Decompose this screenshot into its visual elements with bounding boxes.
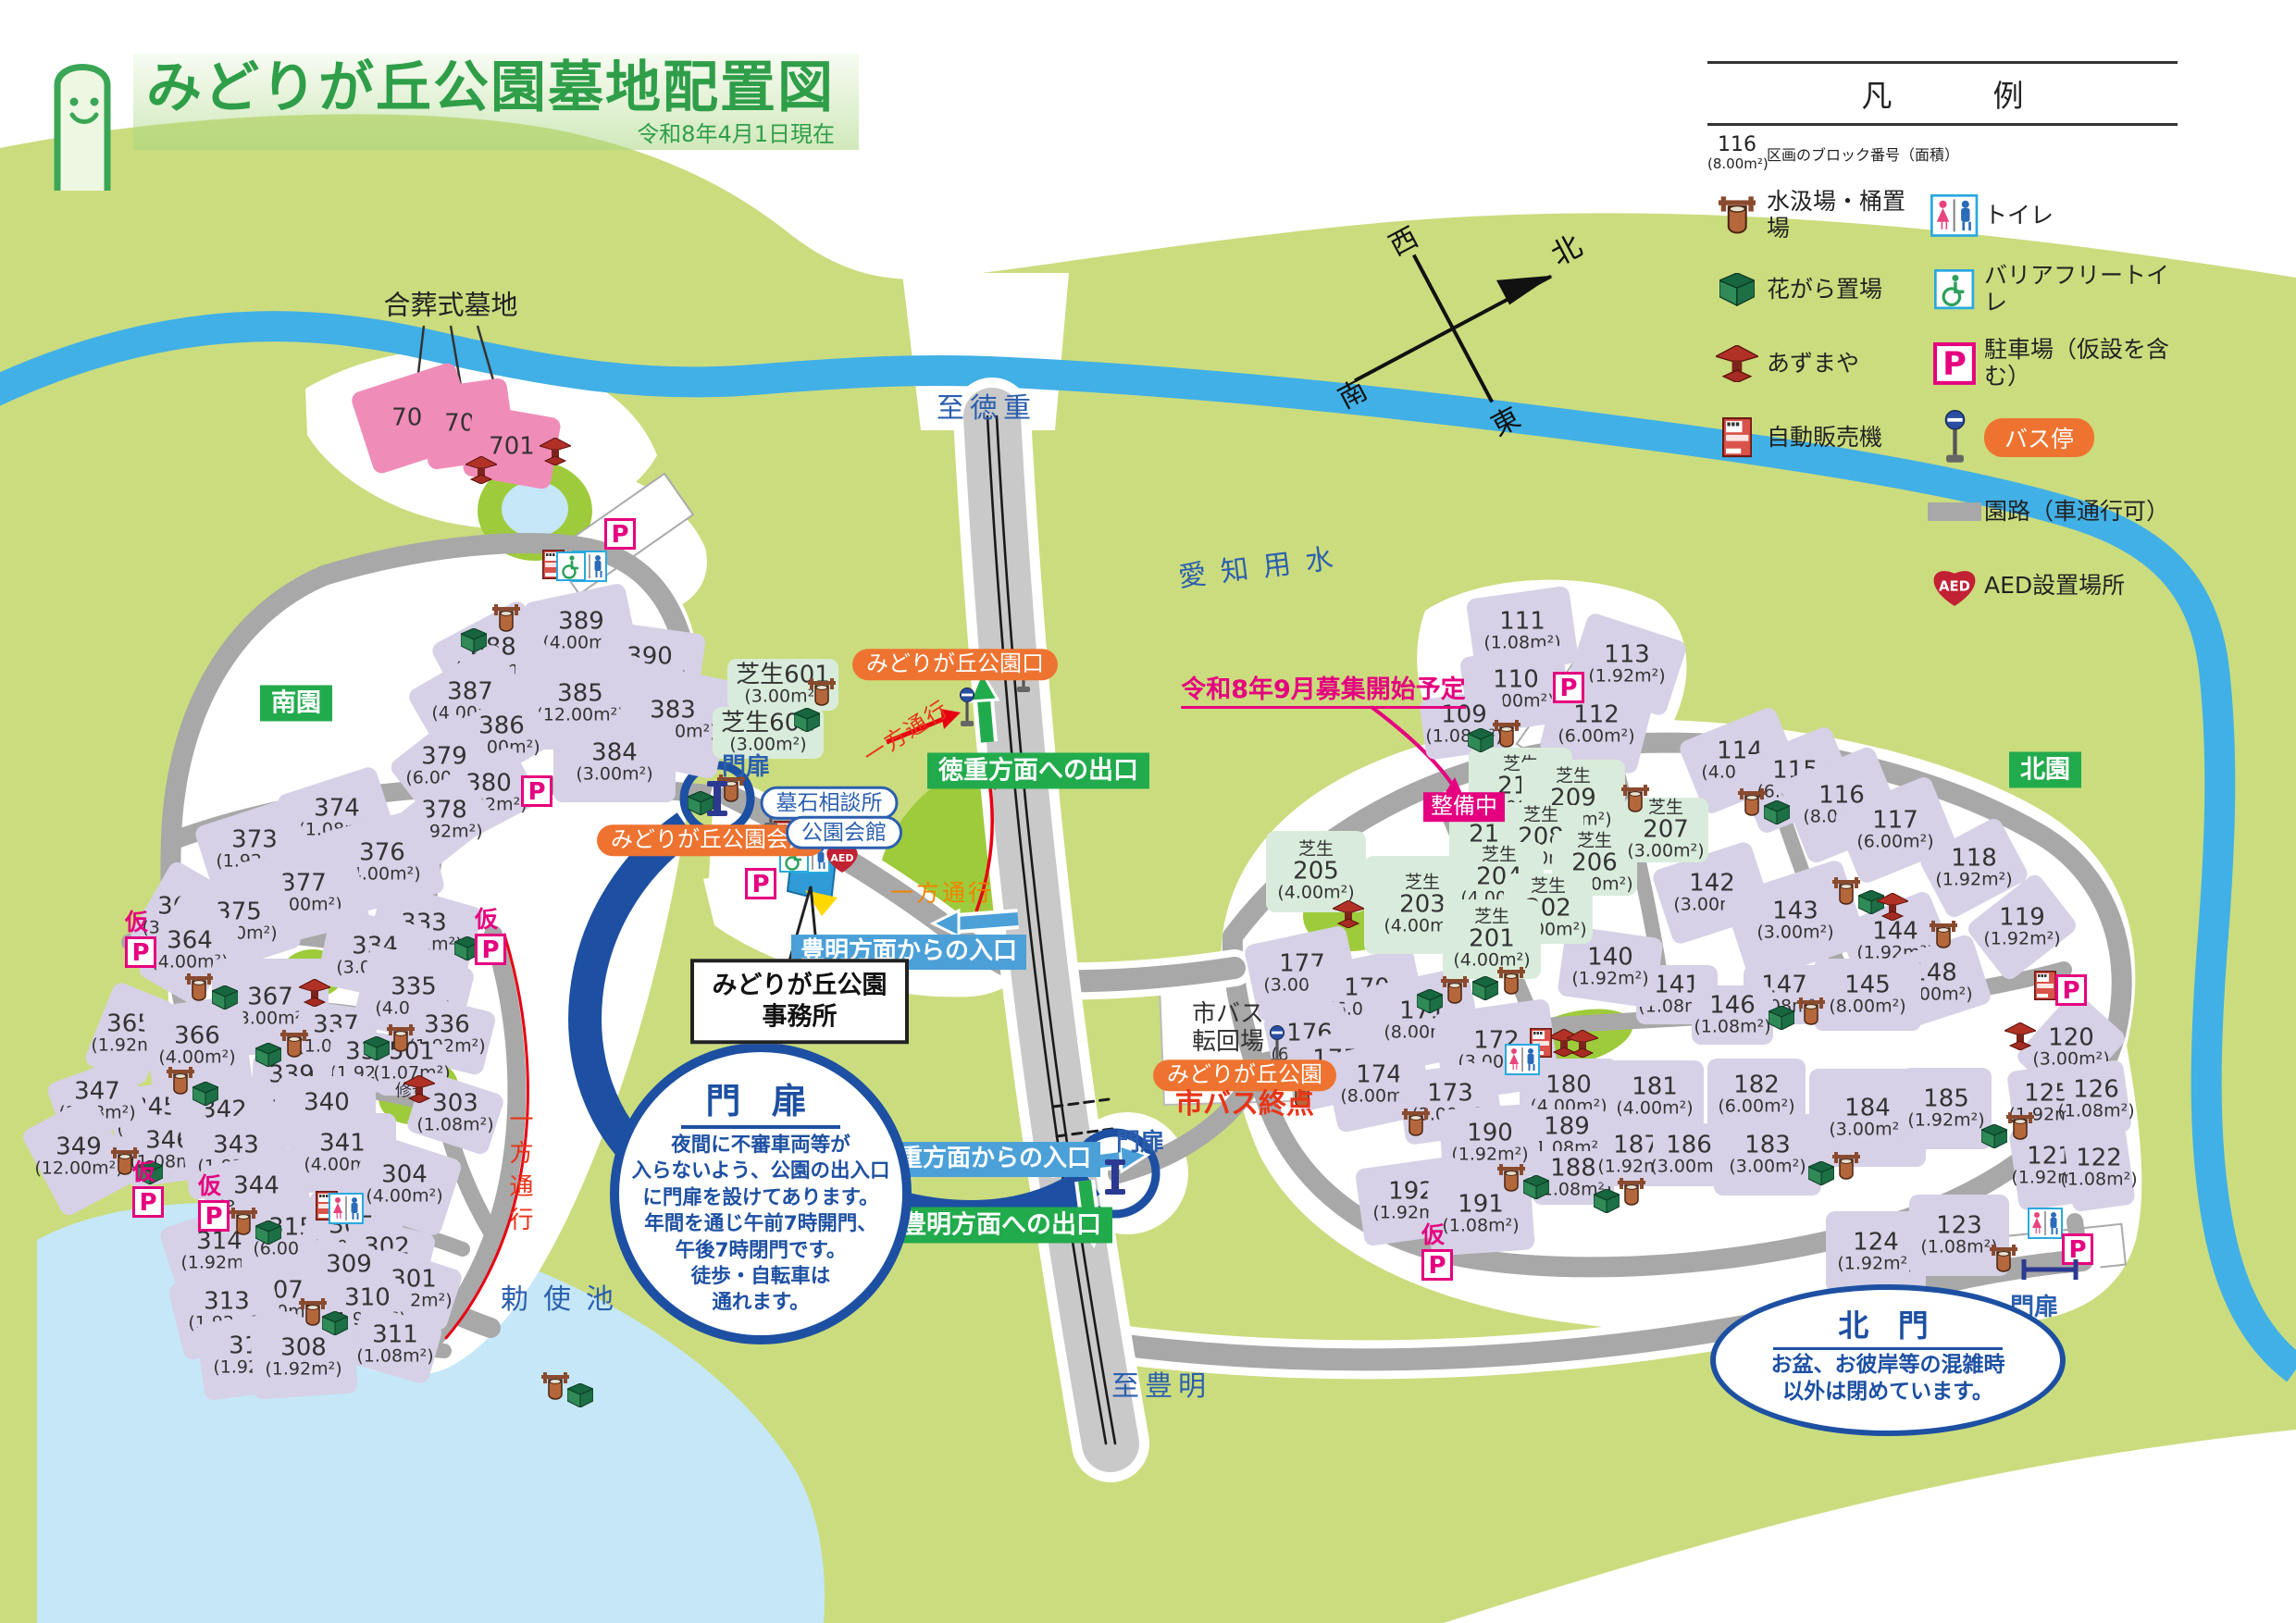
block-label: 183(3.00m²) (1729, 1134, 1806, 1177)
gate-callout: 門 扉 夜間に不審車両等が 入らないよう、公園の出入口 に門扉を設けてあります。… (610, 1043, 912, 1344)
map-label: 一方通行 (890, 881, 994, 908)
block-label: 124(1.92m²) (1837, 1231, 1914, 1274)
flower-disposal-icon (1707, 273, 1767, 305)
parking-icon: P (521, 775, 552, 807)
svg-text:P: P (1428, 1252, 1446, 1280)
legend-item-label: 花がら置場 (1767, 277, 1882, 304)
map-label: 合葬式墓地 (383, 290, 517, 320)
legend-item-label: バリアフリートイレ (1984, 263, 2178, 316)
svg-text:P: P (1559, 675, 1577, 702)
map-label: 墓石相談所 (761, 787, 899, 820)
toilet-icon (329, 1193, 364, 1224)
cemetery-map-canvas: 北 西 南 東 703702701389(4.00m²)388(6.00m²)3… (0, 0, 2296, 1623)
legend-item: 園路（車通行可） (1925, 481, 2178, 542)
well-icon (808, 677, 836, 707)
block-label: 117(6.00m²) (1856, 809, 1933, 852)
flower-disposal-icon (192, 1082, 218, 1106)
block-label: 123(1.08m²) (1920, 1214, 1997, 1258)
bus-stop-icon (958, 688, 976, 728)
map-label: みどりが丘公園口 (852, 649, 1058, 680)
well-icon (1402, 1108, 1430, 1137)
svg-text:P: P (611, 521, 628, 549)
flower-disposal-icon (255, 1220, 281, 1245)
flower-disposal-icon (1417, 989, 1443, 1013)
map-label: 豊明方面への出口 (890, 1207, 1112, 1243)
svg-text:AED: AED (1939, 578, 1970, 594)
well-icon (541, 1371, 569, 1401)
block-label: 184(3.00m²) (1829, 1096, 1905, 1140)
block-label: 146(1.08m²) (1694, 994, 1770, 1037)
map-label: 至徳重 (937, 393, 1036, 426)
legend-item: バス停 (1925, 407, 2178, 468)
svg-text:P: P (139, 1189, 156, 1217)
bus-stop-icon (1925, 410, 1984, 465)
well-icon (1618, 1177, 1645, 1207)
well-icon (1497, 1163, 1525, 1193)
temp-parking-icon: 仮P (475, 906, 506, 965)
barrier-free-toilet-icon (556, 551, 586, 581)
well-icon (280, 1029, 308, 1059)
flower-disposal-icon (1808, 1161, 1834, 1185)
block-label: 366(4.00m²) (158, 1024, 235, 1068)
flower-disposal-icon (255, 1043, 281, 1067)
aed-icon: AED (1925, 564, 1984, 609)
map-label: 整備中 (1423, 792, 1505, 822)
flower-disposal-icon (461, 628, 487, 652)
legend-item-label: AED設置場所 (1984, 573, 2125, 600)
map-label: 勅使池 (501, 1284, 628, 1317)
block-label: 349(12.00m²) (34, 1135, 122, 1179)
map-label: 徳重方面への出口 (927, 752, 1149, 788)
block-label: 112(6.00m²) (1558, 703, 1634, 747)
legend-sample-number: 116 (1707, 135, 1767, 155)
legend-item: 自動販売機 (1707, 407, 1925, 468)
svg-text:P: P (2062, 977, 2079, 1005)
legend-item: あずまや (1707, 333, 1925, 394)
map-label: 門扉 (1116, 1130, 1164, 1158)
gazebo-icon (403, 1075, 435, 1103)
north-gate-callout-title: 北 門 (1773, 1301, 2003, 1350)
temp-parking-icon: 仮P (198, 1172, 230, 1232)
legend-item: トイレ (1925, 185, 2178, 246)
block-label: 126(1.08m²) (2057, 1078, 2134, 1121)
flower-disposal-icon (1523, 1175, 1549, 1199)
map-label: みどりが丘公園 (1153, 1059, 1336, 1091)
map-label: 一方通行 (504, 1107, 532, 1240)
flower-disposal-icon (212, 985, 238, 1010)
flower-disposal-icon (364, 1036, 390, 1060)
vending-machine-icon (1707, 417, 1767, 457)
map-label: 南園 (260, 685, 332, 721)
legend: 凡 例 116 (8.00m²) 区画のブロック番号（面積） 水汲場・桶置場花が… (1707, 61, 2178, 629)
well-icon (1990, 1244, 2017, 1273)
well-icon (1797, 997, 1825, 1026)
svg-text:P: P (751, 871, 769, 898)
block-label: 143(3.00m²) (1756, 899, 1833, 943)
map-label: 至豊明 (1111, 1371, 1211, 1404)
temp-parking-icon: 仮P (125, 909, 156, 968)
well-icon (1441, 975, 1469, 1005)
well-icon (1832, 876, 1860, 906)
gazebo-icon (1877, 893, 1908, 921)
svg-text:P: P (205, 1203, 222, 1231)
legend-item: AEDAED設置場所 (1925, 555, 2178, 616)
legend-sample-label: 区画のブロック番号（面積） (1767, 142, 1959, 165)
legend-item: 水汲場・桶置場 (1707, 185, 1925, 246)
block-label: 113(1.92m²) (1588, 643, 1665, 687)
block-label: 芝生201(4.00m²) (1453, 909, 1530, 971)
legend-item-label: 自動販売機 (1767, 425, 1882, 452)
legend-item-label: トイレ (1984, 203, 2054, 229)
legend-item-label: あずまや (1767, 351, 1859, 378)
map-label: 公園会館 (786, 816, 902, 849)
toilet-icon (1505, 1044, 1540, 1075)
block-label: 190(1.92m²) (1451, 1121, 1528, 1165)
block-label: 145(8.00m²) (1829, 973, 1905, 1017)
well-icon (2006, 1111, 2034, 1141)
legend-item-label: バス停 (1984, 418, 2094, 457)
park-mascot-icon (46, 54, 118, 192)
gate-door-icon (1101, 1159, 1129, 1195)
legend-item: P駐車場（仮設を含む） (1925, 333, 2178, 394)
svg-text:AED: AED (830, 852, 853, 864)
gazebo-icon (1333, 900, 1364, 928)
temp-parking-icon: 仮P (1421, 1221, 1453, 1281)
toilet-icon (1925, 194, 1984, 237)
block-label: 芝生205(4.00m²) (1277, 841, 1354, 903)
gate-bracket-icon (2020, 1258, 2079, 1282)
well-icon (1707, 195, 1767, 235)
block-label: 185(1.92m²) (1907, 1087, 1984, 1131)
temp-parking-icon: 仮P (132, 1158, 164, 1218)
block-label: 385(12.00m²) (536, 682, 624, 725)
road-swatch (1925, 502, 1984, 521)
svg-text:P: P (527, 778, 545, 806)
gazebo-icon (2004, 1022, 2036, 1050)
block-label: 118(1.92m²) (1935, 847, 2012, 890)
block-label: 122(1.08m²) (2060, 1146, 2137, 1190)
well-icon (167, 1066, 194, 1096)
map-label: 令和8年9月募集開始予定 (1181, 675, 1466, 709)
block-label: 181(4.00m²) (1616, 1075, 1693, 1119)
flower-disposal-icon (1468, 728, 1494, 752)
title-date: 令和8年4月1日現在 (146, 116, 835, 148)
map-label: 門扉 (722, 754, 770, 782)
legend-item: バリアフリートイレ (1925, 259, 2178, 320)
north-gate-callout-body: お盆、お彼岸等の混雑時 以外は閉めています。 (1716, 1352, 2060, 1406)
parking-icon: P (604, 518, 636, 550)
block-label: 182(6.00m²) (1718, 1073, 1794, 1117)
north-gate-callout: 北 門 お盆、お彼岸等の混雑時 以外は閉めています。 (1710, 1284, 2066, 1436)
map-label: 市バス終点 (1175, 1089, 1314, 1121)
svg-text:P: P (131, 939, 149, 967)
parking-icon: P (2055, 974, 2087, 1006)
svg-text:P: P (1942, 345, 1967, 383)
gazebo-icon (465, 456, 497, 484)
flower-disposal-icon (567, 1383, 593, 1407)
legend-item: 花がら置場 (1707, 259, 1925, 320)
flower-disposal-icon (1769, 1006, 1794, 1030)
block-label: 308(1.92m²) (265, 1336, 341, 1380)
gate-door-icon (703, 781, 731, 816)
parking-icon: P (1553, 672, 1584, 703)
title-bar: みどりが丘公園墓地配置図 令和8年4月1日現在 (46, 54, 859, 192)
flower-disposal-icon (1594, 1189, 1620, 1213)
legend-item-label: 水汲場・桶置場 (1767, 189, 1925, 242)
well-icon (1832, 1151, 1860, 1181)
flower-disposal-icon (1764, 800, 1790, 824)
flower-disposal-icon (794, 708, 820, 732)
well-icon (387, 1023, 415, 1053)
flower-disposal-icon (1981, 1124, 2007, 1148)
barrier-free-toilet-icon (1925, 269, 1984, 309)
page-title: みどりが丘公園墓地配置図 (146, 59, 835, 118)
flower-disposal-icon (322, 1311, 348, 1335)
map-label: 北園 (2009, 751, 2081, 787)
well-icon (1621, 784, 1649, 813)
block-label: 384(3.00m²) (576, 741, 652, 785)
well-icon (230, 1207, 257, 1236)
flower-disposal-icon (1472, 976, 1498, 1000)
legend-item-label: 駐車場（仮設を含む） (1984, 337, 2178, 390)
parking-icon: P (1925, 342, 1984, 385)
legend-item-label: 園路（車通行可） (1984, 499, 2169, 526)
office-callout: みどりが丘公園 事務所 (690, 959, 909, 1044)
block-label: 119(1.92m²) (1983, 906, 2060, 949)
gate-callout-title: 門 扉 (681, 1072, 839, 1129)
well-icon (1493, 719, 1520, 749)
gate-callout-body: 夜間に不審車両等が 入らないよう、公園の出入口 に門扉を設けてあります。 年間を… (619, 1133, 902, 1317)
parking-icon: P (745, 868, 776, 899)
vending-machine-icon (2034, 971, 2056, 1000)
legend-title: 凡 例 (1707, 61, 2178, 126)
block-label: 304(4.00m²) (366, 1163, 442, 1207)
svg-text:P: P (481, 936, 499, 964)
gazebo-icon (1707, 345, 1767, 383)
well-icon (1497, 966, 1525, 996)
toilet-icon (2028, 1208, 2063, 1239)
legend-sample-area: (8.00m²) (1707, 155, 1767, 172)
block-label: 311(1.08m²) (356, 1323, 433, 1367)
well-icon (185, 973, 213, 1002)
gazebo-icon (299, 979, 330, 1007)
block-label: 191(1.08m²) (1442, 1193, 1519, 1236)
well-icon (492, 603, 520, 633)
map-label: 市バス 転回場 (1192, 1001, 1264, 1057)
well-icon (1738, 787, 1766, 817)
gazebo-icon (1567, 1030, 1598, 1058)
block-label: 140(1.92m²) (1571, 946, 1648, 989)
well-icon (1930, 920, 1957, 949)
gazebo-icon (540, 438, 571, 465)
